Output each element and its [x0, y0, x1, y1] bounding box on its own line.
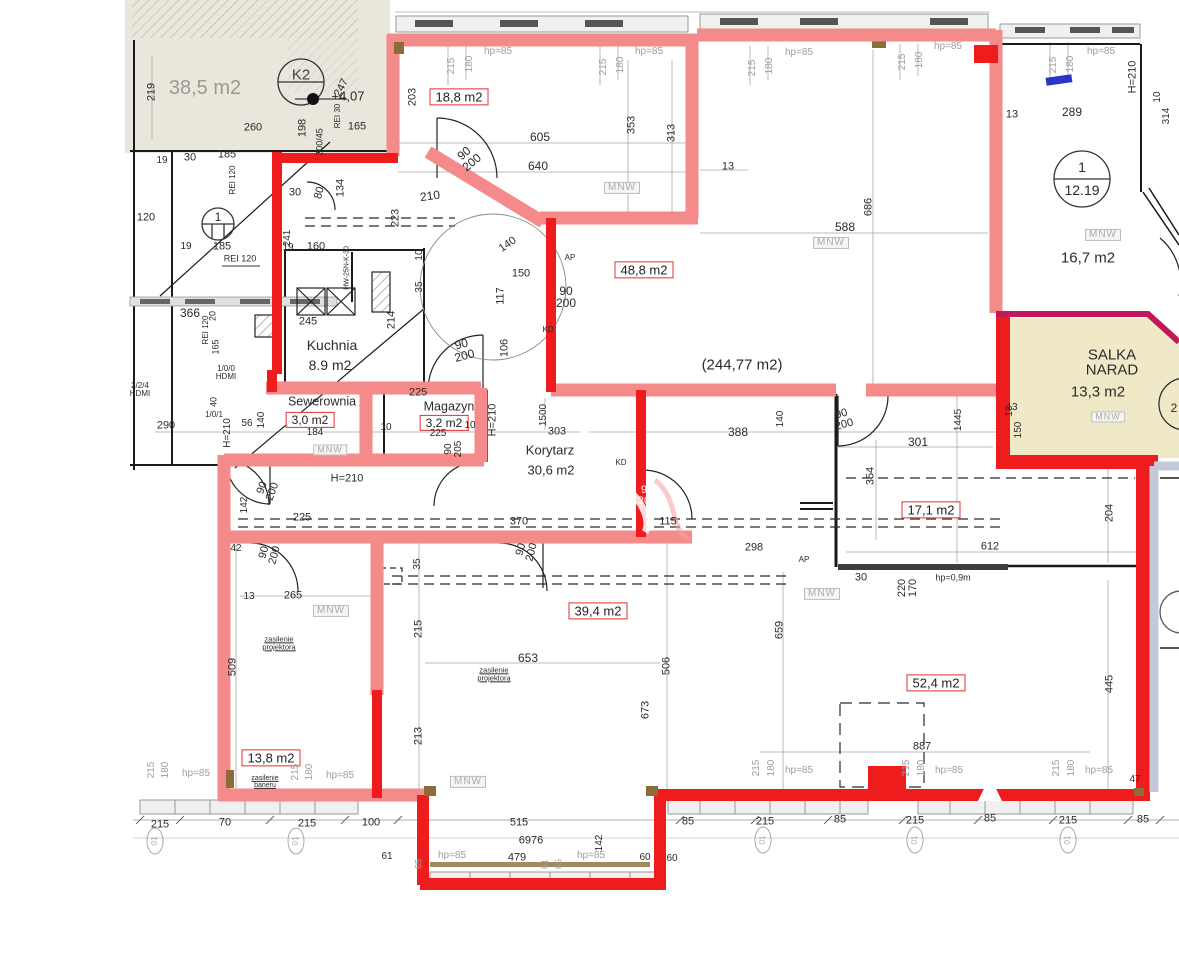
salka-narad-fill — [1008, 318, 1179, 458]
floor-plan-canvas: 38,5 m2K2+4,07260198219247165REI 30200/4… — [0, 0, 1179, 960]
watermark — [570, 415, 647, 532]
blue-mark — [1046, 74, 1073, 86]
floorplan-drawing — [0, 0, 1179, 960]
